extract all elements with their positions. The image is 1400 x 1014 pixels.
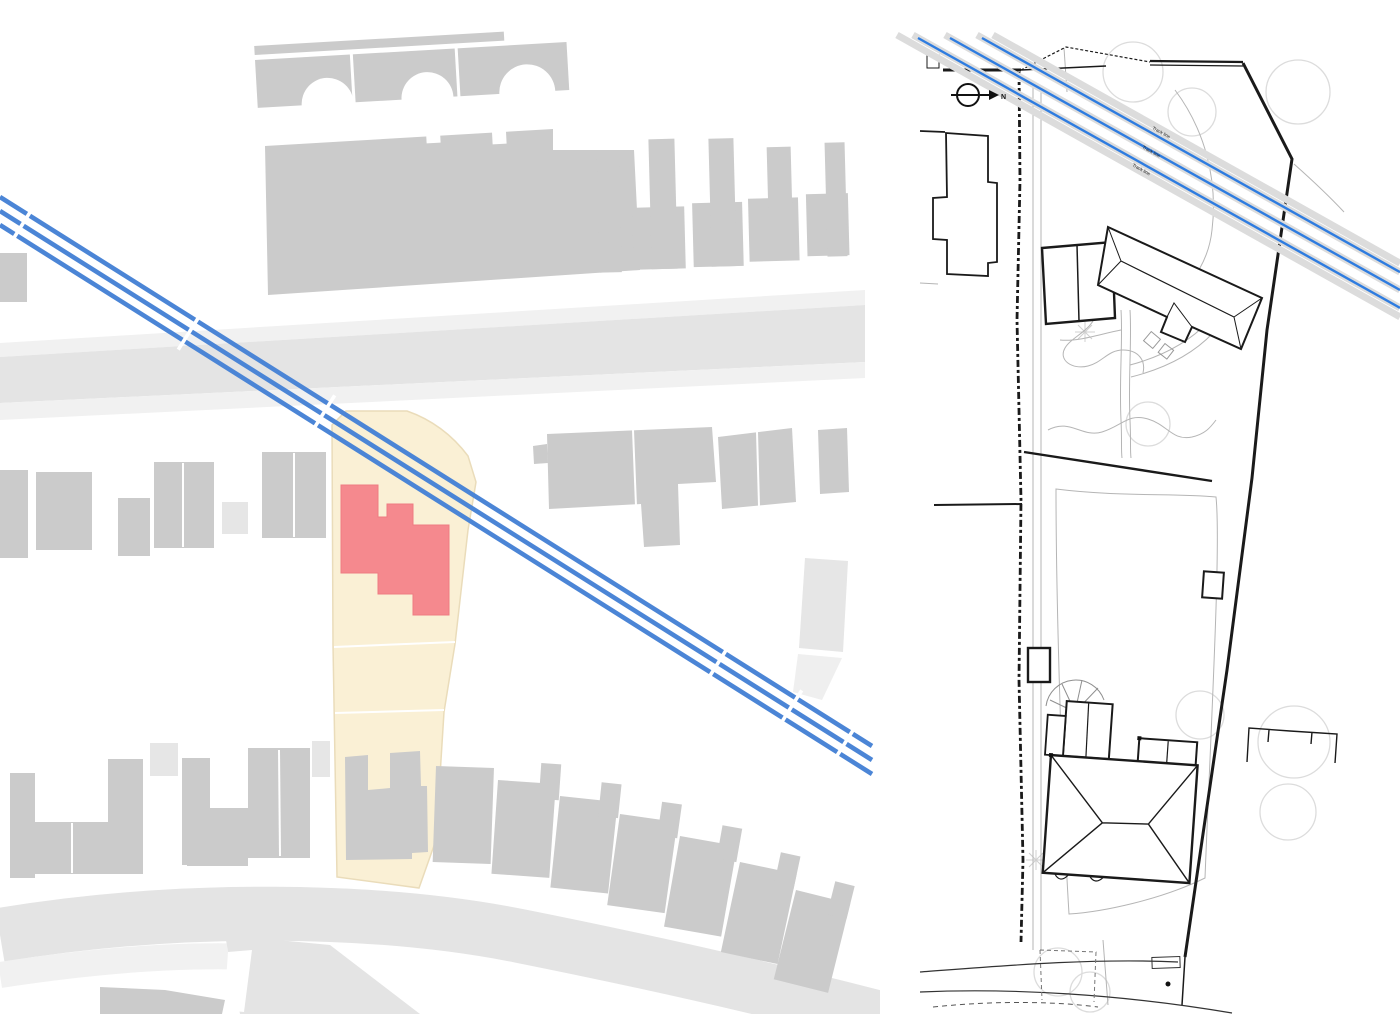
- neighbour-building: [933, 133, 997, 276]
- north-arrow-icon: N: [951, 84, 1006, 106]
- large-block: [265, 119, 640, 295]
- location-plan-panel: [0, 0, 880, 1014]
- long-roofed-building: [1098, 227, 1262, 349]
- houses-left-mid: [0, 452, 326, 558]
- site-plan-panel: Track line Track line Track line N: [880, 0, 1400, 1014]
- west-boundary: [1017, 72, 1023, 942]
- small-outbuilding: [1202, 571, 1224, 598]
- drawing-sheet: Track line Track line Track line N: [0, 0, 1400, 1014]
- cross-fence: [1024, 452, 1212, 481]
- houses-bottom-left: [10, 741, 330, 878]
- garden-store: [1028, 648, 1050, 682]
- main-house: [1036, 700, 1201, 888]
- track-line-label: Track line: [1142, 145, 1162, 159]
- north-label: N: [1001, 94, 1006, 101]
- road-corridor: [0, 290, 865, 420]
- terrace-with-bays: [254, 28, 571, 136]
- fence-returns: [1247, 728, 1337, 763]
- building-bottom-edge: [100, 987, 225, 1014]
